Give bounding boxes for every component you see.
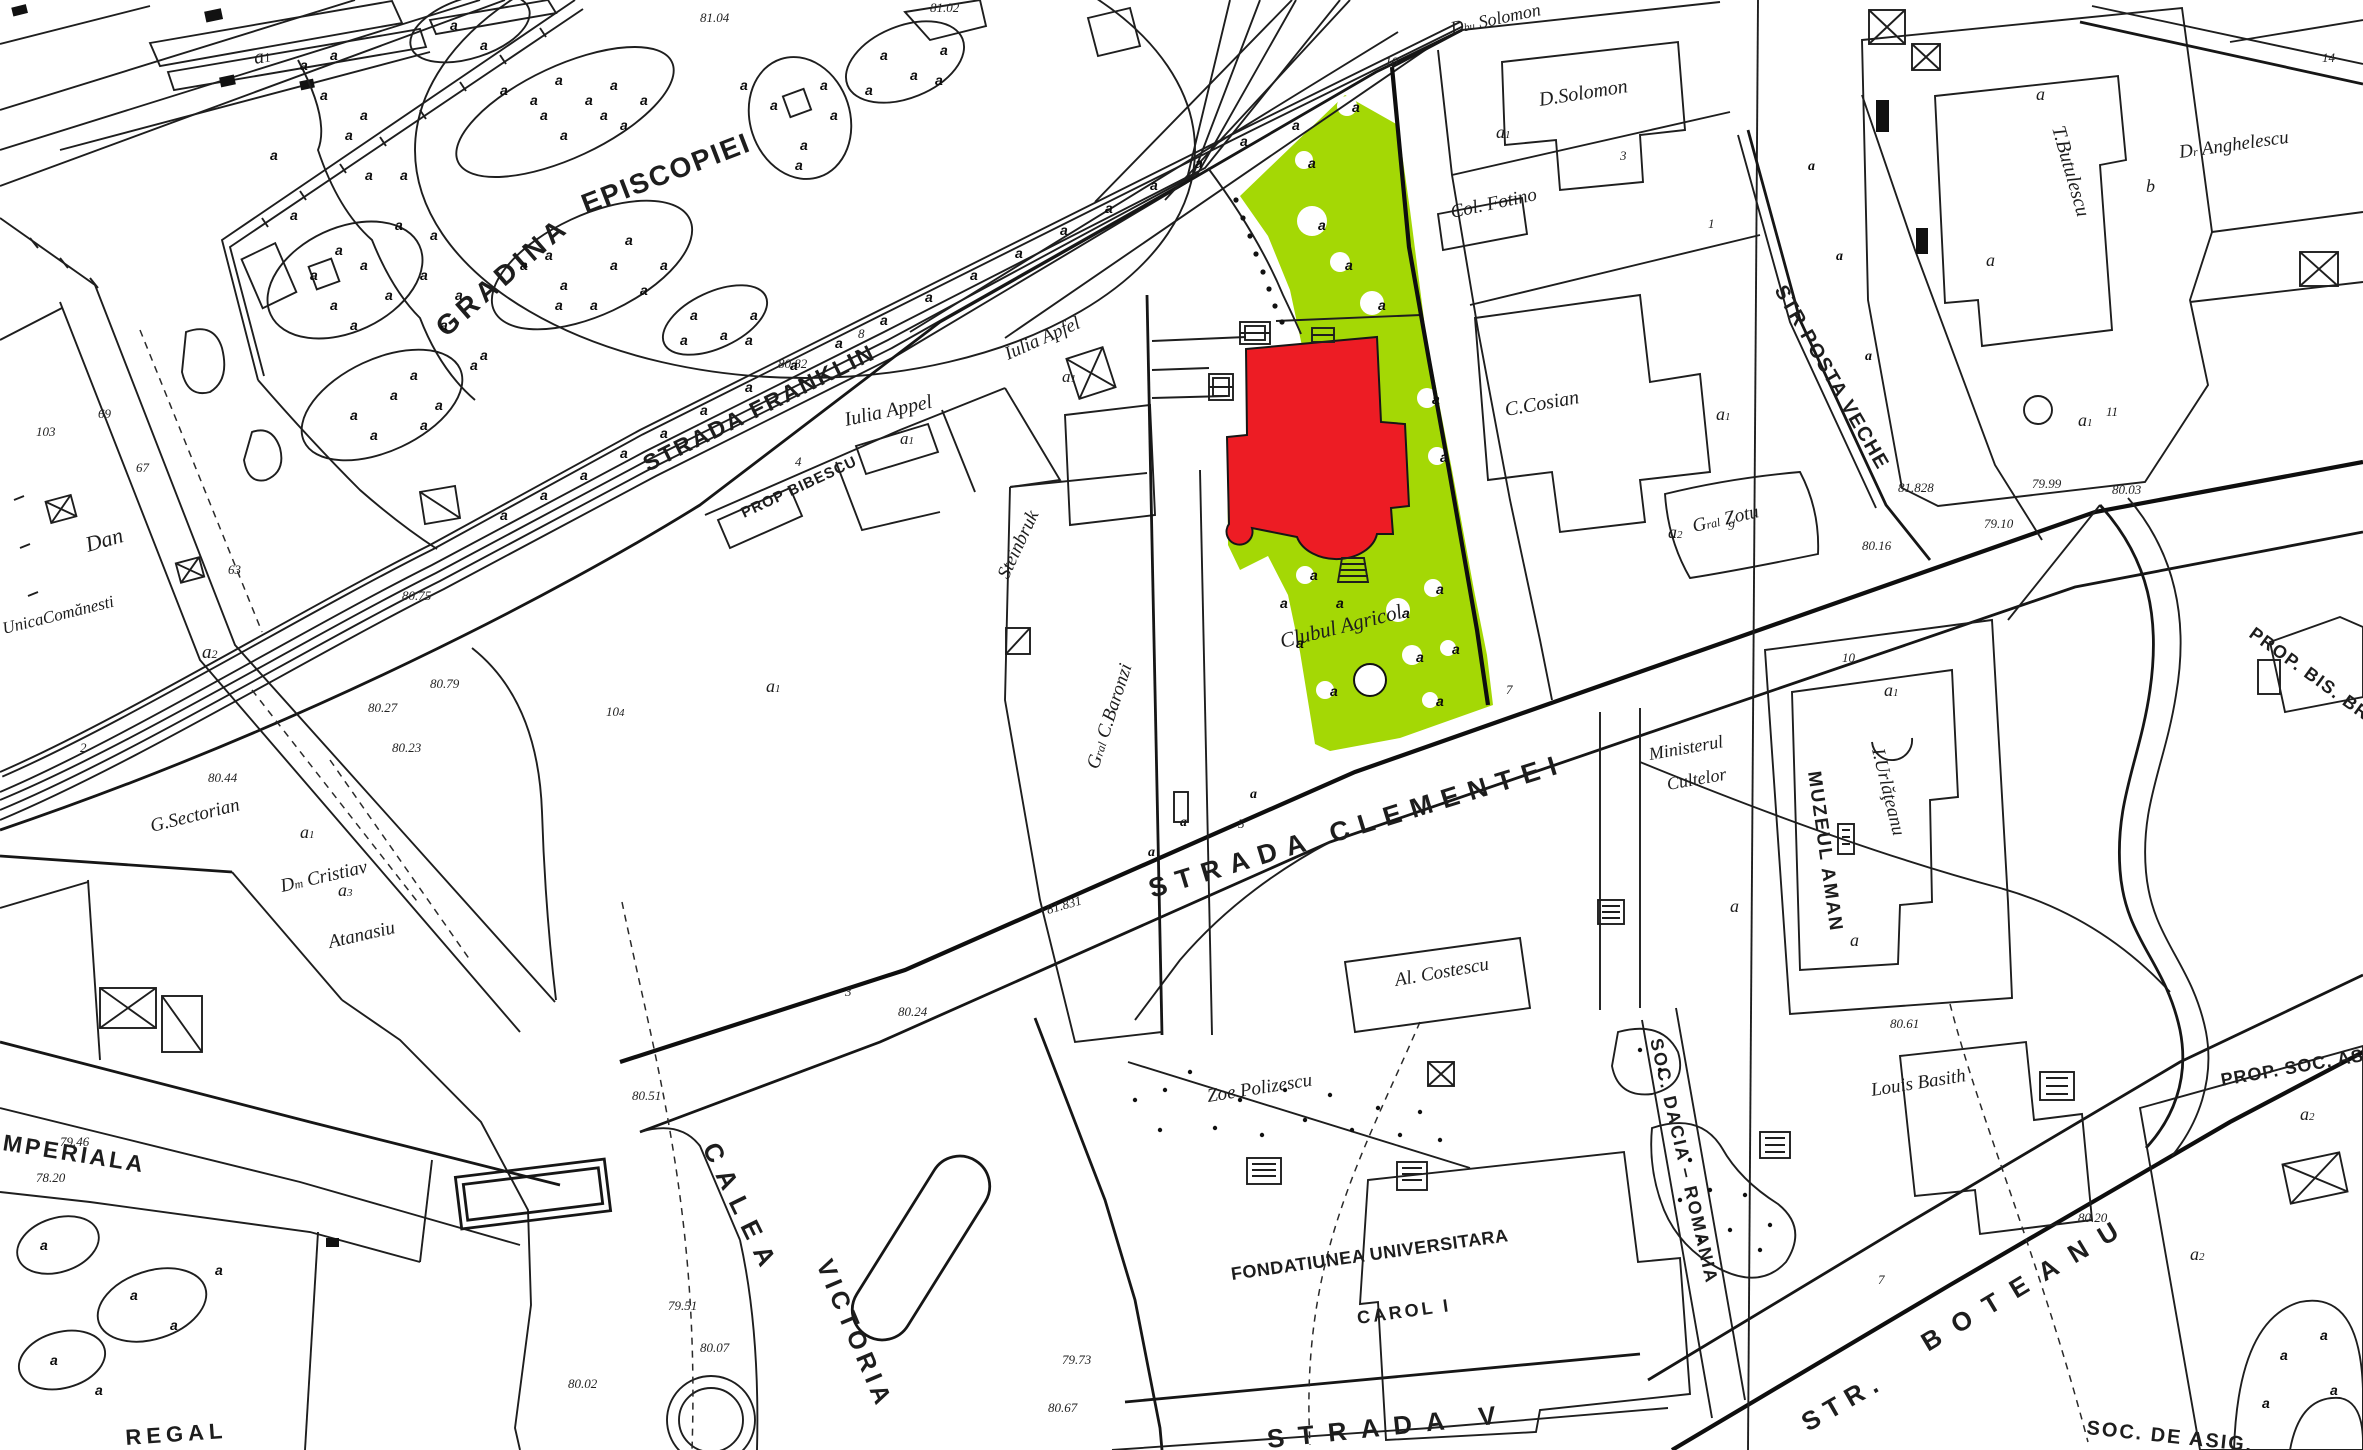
svg-text:a: a	[880, 312, 888, 328]
svg-text:a: a	[350, 317, 358, 333]
svg-text:a: a	[560, 277, 568, 293]
svg-text:a: a	[1836, 249, 1843, 264]
svg-text:80.51: 80.51	[632, 1088, 661, 1103]
svg-text:a: a	[700, 402, 708, 418]
svg-text:a: a	[310, 267, 318, 283]
svg-text:7: 7	[1506, 682, 1513, 697]
svg-text:a: a	[580, 467, 588, 483]
svg-text:a: a	[745, 379, 753, 395]
svg-text:a: a	[330, 297, 338, 313]
svg-text:104: 104	[606, 704, 625, 719]
svg-text:a: a	[660, 425, 668, 441]
svg-text:a: a	[455, 287, 463, 303]
svg-text:a: a	[330, 47, 338, 63]
svg-text:a: a	[420, 417, 428, 433]
svg-text:a: a	[50, 1352, 58, 1368]
svg-text:a: a	[410, 367, 418, 383]
svg-text:a: a	[970, 267, 978, 283]
svg-text:a: a	[545, 247, 553, 263]
svg-text:79.99: 79.99	[2032, 476, 2062, 491]
svg-text:a: a	[1452, 641, 1460, 657]
svg-text:a: a	[1250, 787, 1257, 802]
svg-text:a: a	[2320, 1327, 2328, 1343]
svg-text:a: a	[360, 107, 368, 123]
svg-text:a: a	[170, 1317, 178, 1333]
svg-text:a: a	[720, 327, 728, 343]
svg-text:80.16: 80.16	[1862, 538, 1892, 553]
svg-text:80.67: 80.67	[1048, 1400, 1078, 1415]
svg-text:8: 8	[858, 326, 865, 341]
svg-text:a: a	[450, 17, 458, 33]
svg-text:a: a	[1416, 649, 1424, 665]
svg-text:a: a	[1865, 349, 1872, 364]
svg-text:a: a	[610, 257, 618, 273]
svg-text:a: a	[40, 1237, 48, 1253]
svg-text:4: 4	[795, 454, 802, 469]
svg-text:a: a	[2036, 84, 2045, 104]
svg-text:a: a	[610, 77, 618, 93]
svg-text:81.02: 81.02	[930, 0, 960, 15]
svg-text:a: a	[790, 357, 798, 373]
svg-text:a: a	[1808, 159, 1815, 174]
svg-text:a: a	[480, 347, 488, 363]
svg-text:3: 3	[844, 984, 852, 999]
svg-text:a: a	[690, 307, 698, 323]
svg-text:a: a	[555, 297, 563, 313]
svg-text:a: a	[420, 267, 428, 283]
svg-text:80.27: 80.27	[368, 700, 398, 715]
svg-text:a: a	[800, 137, 808, 153]
svg-text:67: 67	[136, 460, 150, 475]
svg-text:a: a	[335, 242, 343, 258]
svg-text:a: a	[740, 77, 748, 93]
svg-text:80.75: 80.75	[402, 588, 432, 603]
svg-text:a: a	[1280, 595, 1288, 611]
svg-text:a: a	[1105, 200, 1113, 216]
svg-text:a: a	[640, 282, 648, 298]
svg-text:a: a	[290, 207, 298, 223]
svg-text:a: a	[925, 289, 933, 305]
svg-text:81.828: 81.828	[1898, 480, 1934, 495]
svg-text:a: a	[530, 92, 538, 108]
svg-text:a: a	[1060, 222, 1068, 238]
svg-text:a: a	[440, 317, 448, 333]
svg-text:80.02: 80.02	[568, 1376, 598, 1391]
svg-text:a: a	[835, 335, 843, 351]
svg-text:5: 5	[1238, 816, 1245, 831]
svg-text:a: a	[1148, 845, 1155, 860]
svg-text:78.20: 78.20	[36, 1170, 66, 1185]
svg-text:80.24: 80.24	[898, 1004, 928, 1019]
svg-text:a: a	[865, 82, 873, 98]
svg-text:a: a	[585, 92, 593, 108]
svg-text:a: a	[370, 427, 378, 443]
svg-text:a: a	[1308, 155, 1316, 171]
svg-text:a: a	[625, 232, 633, 248]
svg-text:a: a	[1345, 257, 1353, 273]
svg-text:a: a	[350, 407, 358, 423]
svg-text:a: a	[1436, 581, 1444, 597]
svg-text:a: a	[935, 72, 943, 88]
svg-text:a: a	[1195, 155, 1203, 171]
svg-text:14: 14	[2322, 50, 2336, 65]
svg-text:a: a	[215, 1262, 223, 1278]
svg-text:a: a	[1402, 605, 1410, 621]
svg-text:80.79: 80.79	[430, 676, 460, 691]
svg-text:a: a	[1440, 449, 1448, 465]
svg-text:1: 1	[1708, 216, 1715, 231]
svg-text:79.73: 79.73	[1062, 1352, 1092, 1367]
svg-text:a: a	[95, 1382, 103, 1398]
svg-text:a: a	[320, 87, 328, 103]
svg-text:69: 69	[98, 406, 112, 421]
svg-text:a: a	[1150, 177, 1158, 193]
svg-text:79.46: 79.46	[60, 1134, 90, 1149]
svg-text:a: a	[1378, 297, 1386, 313]
svg-text:a: a	[1730, 896, 1739, 916]
svg-text:a: a	[1330, 683, 1338, 699]
svg-text:a: a	[1015, 245, 1023, 261]
svg-text:a: a	[640, 92, 648, 108]
svg-text:a: a	[360, 257, 368, 273]
svg-text:a: a	[1986, 250, 1995, 270]
svg-text:a: a	[1850, 930, 1859, 950]
svg-text:a: a	[1318, 217, 1326, 233]
svg-text:63: 63	[228, 562, 242, 577]
svg-text:103: 103	[36, 424, 56, 439]
svg-text:a: a	[795, 157, 803, 173]
svg-text:a: a	[820, 77, 828, 93]
svg-text:79.51: 79.51	[668, 1298, 697, 1313]
svg-text:80.20: 80.20	[2078, 1210, 2108, 1225]
svg-text:a: a	[750, 307, 758, 323]
svg-text:a: a	[590, 297, 598, 313]
svg-text:a: a	[400, 167, 408, 183]
svg-text:80.03: 80.03	[2112, 482, 2142, 497]
svg-text:10: 10	[1385, 54, 1399, 69]
svg-text:a: a	[385, 287, 393, 303]
svg-text:a: a	[435, 397, 443, 413]
svg-text:a: a	[270, 147, 278, 163]
svg-text:a: a	[130, 1287, 138, 1303]
svg-text:a: a	[345, 127, 353, 143]
svg-text:80.07: 80.07	[700, 1340, 730, 1355]
svg-text:a: a	[745, 332, 753, 348]
svg-text:a: a	[940, 42, 948, 58]
svg-text:a: a	[430, 227, 438, 243]
svg-text:a: a	[540, 487, 548, 503]
svg-text:a: a	[2280, 1347, 2288, 1363]
svg-text:a: a	[500, 507, 508, 523]
svg-text:3: 3	[1619, 148, 1627, 163]
svg-text:a: a	[540, 107, 548, 123]
svg-text:a: a	[1336, 595, 1344, 611]
svg-text:80.61: 80.61	[1890, 1016, 1919, 1031]
svg-text:a: a	[365, 167, 373, 183]
svg-text:a: a	[660, 257, 668, 273]
svg-text:a: a	[1436, 693, 1444, 709]
svg-text:80.44: 80.44	[208, 770, 238, 785]
svg-text:2: 2	[80, 740, 87, 755]
svg-text:a: a	[1432, 391, 1440, 407]
svg-text:a: a	[1296, 635, 1304, 651]
svg-text:b: b	[2146, 176, 2155, 196]
svg-text:a: a	[1310, 567, 1318, 583]
svg-text:a: a	[300, 57, 308, 73]
svg-text:a: a	[2330, 1382, 2338, 1398]
svg-text:a: a	[1292, 117, 1300, 133]
svg-text:a: a	[1240, 133, 1248, 149]
svg-text:a: a	[770, 97, 778, 113]
svg-text:a: a	[620, 445, 628, 461]
svg-text:a: a	[600, 107, 608, 123]
svg-text:a: a	[555, 72, 563, 88]
svg-text:80.23: 80.23	[392, 740, 422, 755]
svg-text:79.10: 79.10	[1984, 516, 2014, 531]
svg-text:81.04: 81.04	[700, 10, 730, 25]
svg-text:a: a	[910, 67, 918, 83]
svg-text:a: a	[390, 387, 398, 403]
svg-text:7: 7	[1878, 1272, 1885, 1287]
svg-text:a: a	[470, 357, 478, 373]
svg-text:a: a	[680, 332, 688, 348]
svg-text:a: a	[830, 107, 838, 123]
svg-text:a: a	[395, 217, 403, 233]
svg-text:11: 11	[2106, 404, 2118, 419]
svg-text:a: a	[560, 127, 568, 143]
svg-text:a: a	[500, 82, 508, 98]
svg-text:a: a	[480, 37, 488, 53]
svg-text:a: a	[620, 117, 628, 133]
svg-text:a: a	[1352, 99, 1360, 115]
svg-text:a: a	[880, 47, 888, 63]
svg-text:a: a	[520, 257, 528, 273]
svg-text:10: 10	[1842, 650, 1856, 665]
svg-text:a: a	[2262, 1395, 2270, 1411]
